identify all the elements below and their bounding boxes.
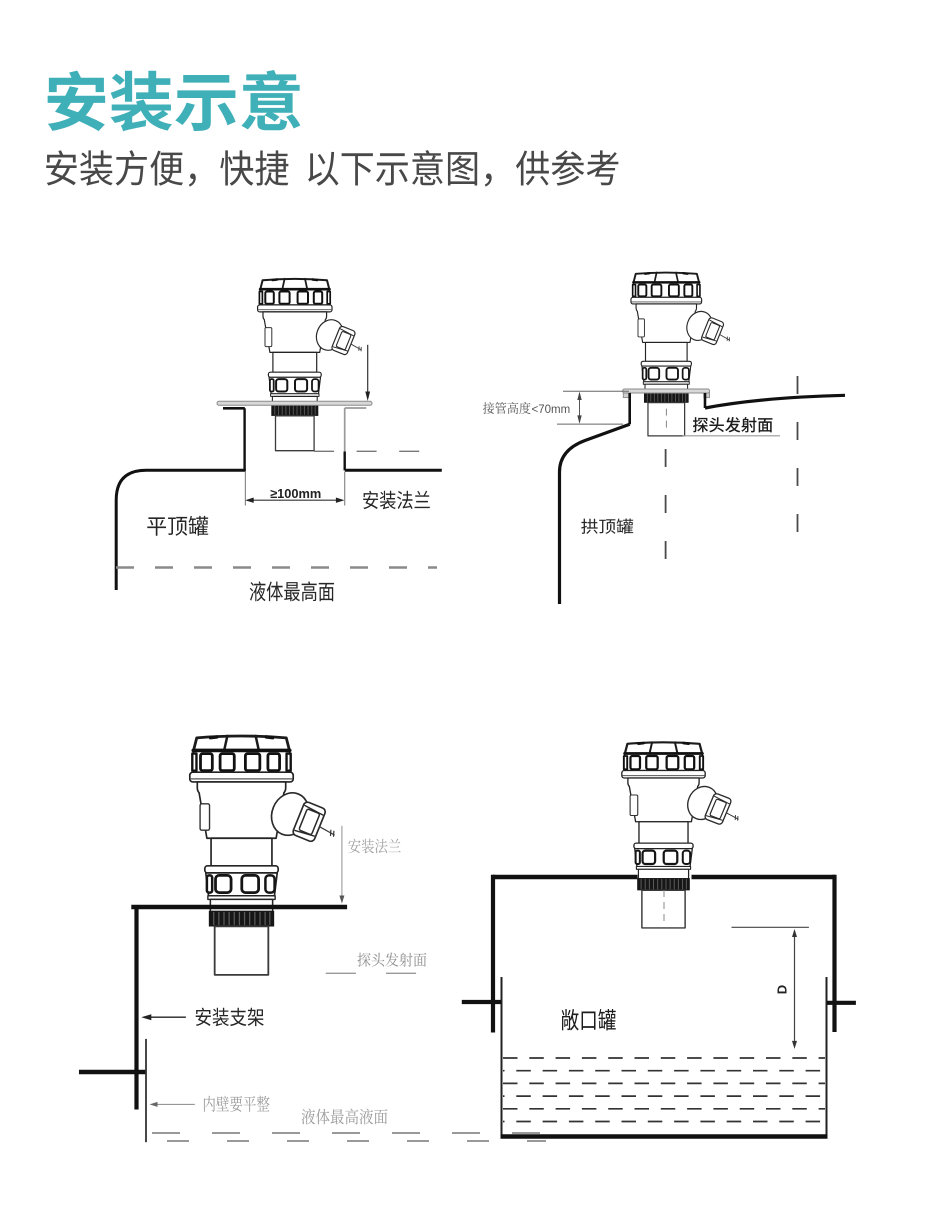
svg-text:≥100mm: ≥100mm bbox=[270, 486, 321, 501]
svg-text:D: D bbox=[775, 985, 790, 994]
svg-text:<70mm: <70mm bbox=[532, 404, 571, 416]
